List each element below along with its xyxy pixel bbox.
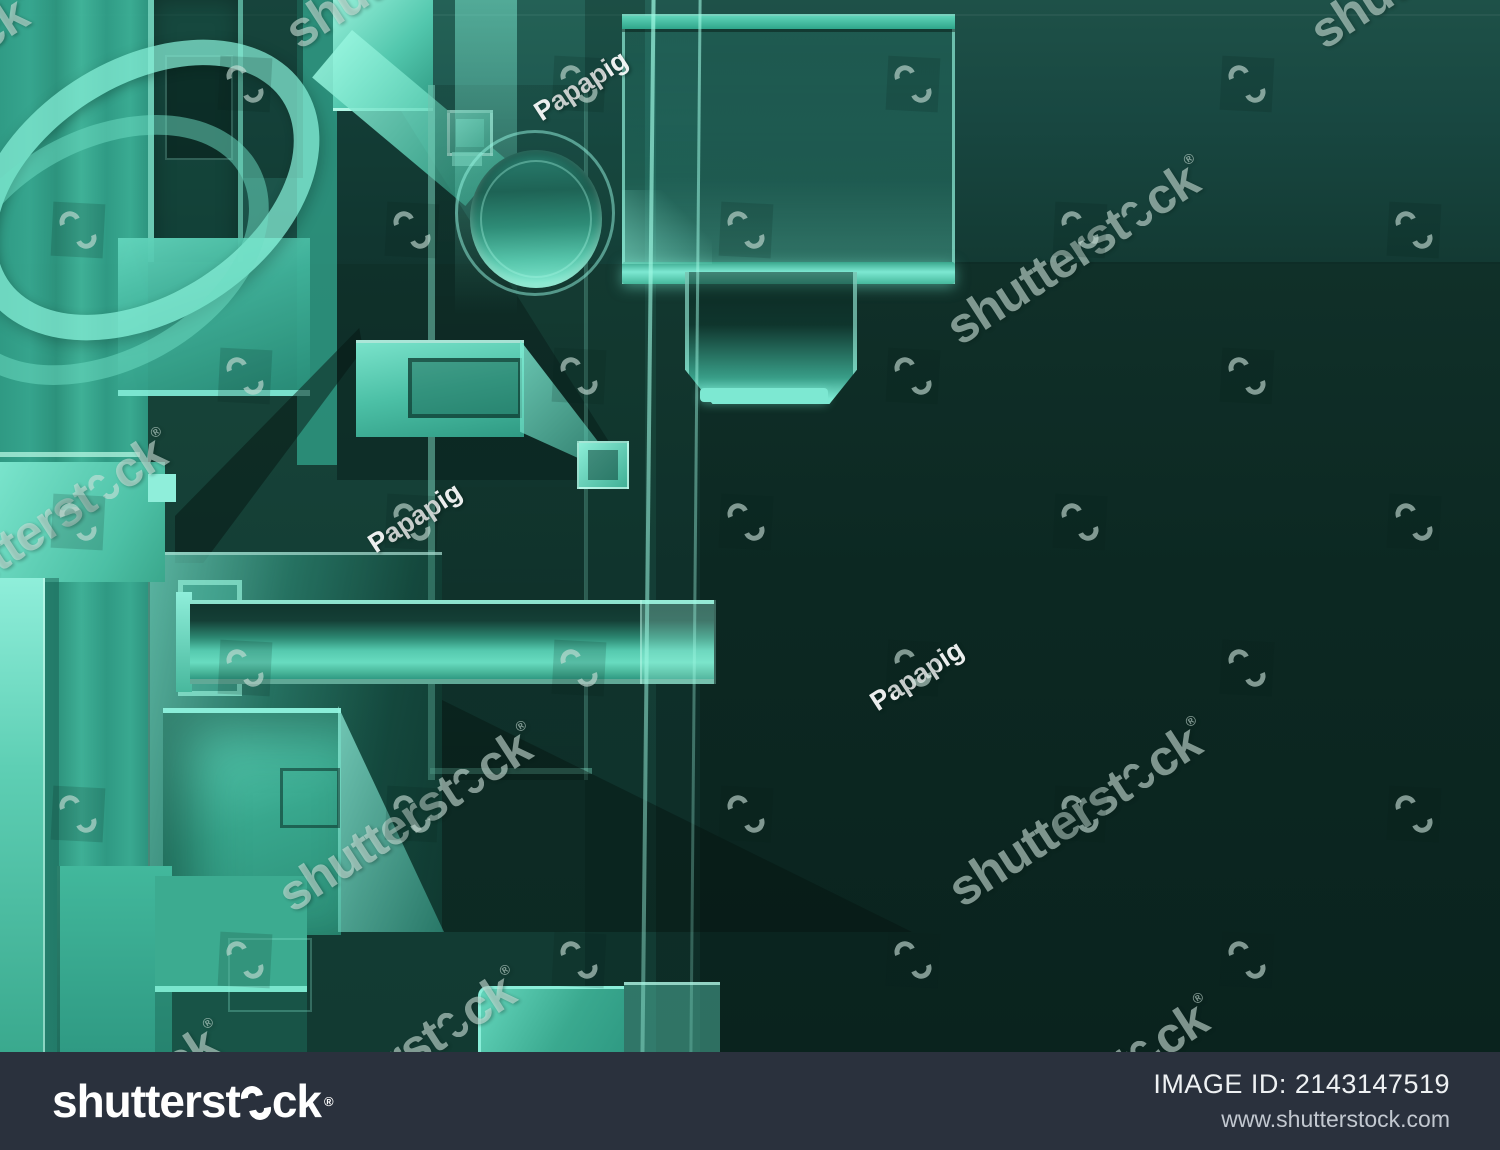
- shutterstock-s-mark-icon: [1060, 499, 1100, 544]
- shutterstock-s-mark-icon: [1060, 791, 1100, 836]
- shutterstock-watermark: shutterstck®: [0, 0, 46, 190]
- image-id-text: IMAGE ID: 2143147519: [1153, 1069, 1450, 1100]
- shutterstock-s-mark-icon: [726, 499, 766, 544]
- shutterstock-s-mark-icon: [893, 937, 933, 982]
- shutterstock-s-mark-icon: [1394, 499, 1434, 544]
- shutterstock-watermark: shutterstck®: [1299, 0, 1500, 60]
- shutterstock-s-mark-icon: [893, 61, 933, 106]
- shutterstock-s-mark-icon: [392, 499, 432, 544]
- shutterstock-s-mark-icon: [1060, 207, 1100, 252]
- shutterstock-s-mark-icon: [559, 61, 599, 106]
- watermark-layer: shutterstck®shutterstck®shutterstck®shut…: [0, 0, 1500, 1052]
- shutterstock-s-mark-icon: [225, 353, 265, 398]
- shutterstock-logo: shutterst ck ®: [52, 1052, 333, 1150]
- shutterstock-s-mark-icon: [225, 645, 265, 690]
- shutterstock-s-mark-icon: [58, 207, 98, 252]
- logo-text-suffix: ck: [272, 1074, 321, 1128]
- stock-image-preview: shutterstck®shutterstck®shutterstck®shut…: [0, 0, 1500, 1052]
- registered-trademark-symbol: ®: [324, 1094, 333, 1109]
- shutterstock-s-mark-icon: [58, 791, 98, 836]
- shutterstock-s-mark-icon: [1227, 645, 1267, 690]
- shutterstock-s-mark-icon: [58, 499, 98, 544]
- shutterstock-s-mark-icon: [225, 937, 265, 982]
- shutterstock-s-mark-icon: [893, 353, 933, 398]
- shutterstock-s-mark-icon: [559, 645, 599, 690]
- shutterstock-s-mark-icon: [392, 791, 432, 836]
- shutterstock-s-mark-icon: [1227, 61, 1267, 106]
- shutterstock-s-mark-icon: [1394, 791, 1434, 836]
- shutterstock-s-mark-icon: [225, 61, 265, 106]
- shutterstock-s-mark-icon: [726, 207, 766, 252]
- shutterstock-s-mark-icon: [1227, 353, 1267, 398]
- shutterstock-s-mark-icon: [893, 645, 933, 690]
- shutterstock-s-mark-icon: [559, 353, 599, 398]
- footer-meta: IMAGE ID: 2143147519 www.shutterstock.co…: [1153, 1052, 1450, 1150]
- shutterstock-s-mark-icon: [726, 791, 766, 836]
- shutterstock-o-icon: [241, 1086, 271, 1120]
- shutterstock-s-mark-icon: [559, 937, 599, 982]
- logo-text-prefix: shutterst: [52, 1074, 240, 1128]
- shutterstock-watermark: shutterstck®: [0, 1010, 236, 1052]
- shutterstock-preview-page: shutterstck®shutterstck®shutterstck®shut…: [0, 0, 1500, 1150]
- website-url-text: www.shutterstock.com: [1221, 1106, 1450, 1133]
- shutterstock-watermark: shutterstck®: [944, 985, 1225, 1052]
- shutterstock-s-mark-icon: [392, 207, 432, 252]
- shutterstock-s-mark-icon: [1227, 937, 1267, 982]
- shutterstock-watermark: shutterstck®: [251, 957, 532, 1052]
- footer-bar: shutterst ck ® IMAGE ID: 2143147519 www.…: [0, 1052, 1500, 1150]
- shutterstock-s-mark-icon: [1394, 207, 1434, 252]
- shutterstock-watermark: shutterstck®: [274, 0, 555, 60]
